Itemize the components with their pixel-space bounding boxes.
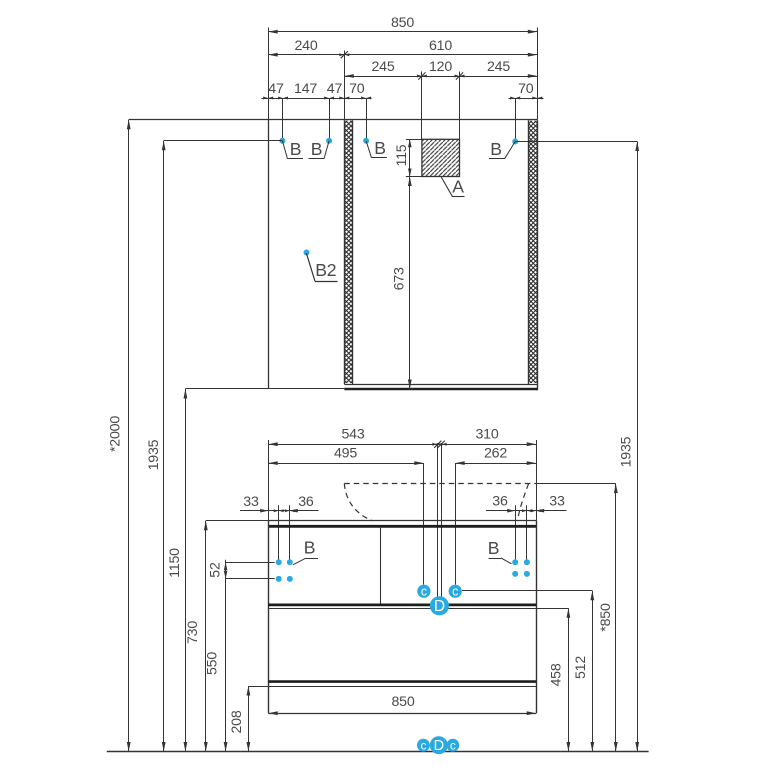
svg-text:120: 120 <box>429 59 452 75</box>
svg-text:850: 850 <box>391 694 414 710</box>
svg-text:A: A <box>452 176 464 196</box>
svg-text:262: 262 <box>484 446 507 462</box>
svg-text:33: 33 <box>243 494 259 510</box>
svg-text:147: 147 <box>294 81 317 97</box>
svg-text:512: 512 <box>573 656 589 679</box>
svg-text:c: c <box>452 584 458 598</box>
svg-text:*850: *850 <box>598 603 614 632</box>
svg-text:B: B <box>290 139 302 159</box>
svg-text:B: B <box>304 538 316 558</box>
svg-text:B: B <box>488 538 500 558</box>
svg-text:c: c <box>421 584 427 598</box>
svg-text:245: 245 <box>487 59 510 75</box>
svg-text:730: 730 <box>185 621 201 644</box>
svg-text:B: B <box>490 139 502 159</box>
svg-text:c: c <box>450 738 456 752</box>
svg-text:495: 495 <box>334 446 357 462</box>
svg-text:70: 70 <box>518 81 534 97</box>
svg-text:47: 47 <box>268 81 284 97</box>
svg-text:115: 115 <box>394 144 410 166</box>
svg-text:47: 47 <box>327 81 343 97</box>
svg-text:240: 240 <box>294 38 317 54</box>
svg-text:36: 36 <box>298 494 314 510</box>
svg-text:208: 208 <box>229 710 245 733</box>
svg-text:1935: 1935 <box>146 439 162 470</box>
svg-text:*2000: *2000 <box>108 416 124 452</box>
svg-text:36: 36 <box>492 493 508 509</box>
svg-text:B2: B2 <box>315 260 336 280</box>
svg-text:D: D <box>434 738 444 754</box>
svg-text:33: 33 <box>549 493 565 509</box>
svg-text:850: 850 <box>391 15 414 31</box>
svg-text:550: 550 <box>204 652 220 675</box>
svg-text:245: 245 <box>371 59 394 75</box>
svg-text:458: 458 <box>549 663 565 686</box>
svg-text:B: B <box>311 139 323 159</box>
svg-text:52: 52 <box>207 562 223 578</box>
svg-text:310: 310 <box>475 426 498 442</box>
svg-text:70: 70 <box>349 81 365 97</box>
svg-text:1150: 1150 <box>167 548 183 578</box>
svg-text:B: B <box>374 138 386 158</box>
svg-text:1935: 1935 <box>618 436 634 467</box>
svg-text:610: 610 <box>429 38 452 54</box>
svg-text:c: c <box>420 738 426 752</box>
svg-text:D: D <box>434 598 445 615</box>
svg-text:543: 543 <box>341 426 364 442</box>
svg-text:673: 673 <box>392 267 408 290</box>
